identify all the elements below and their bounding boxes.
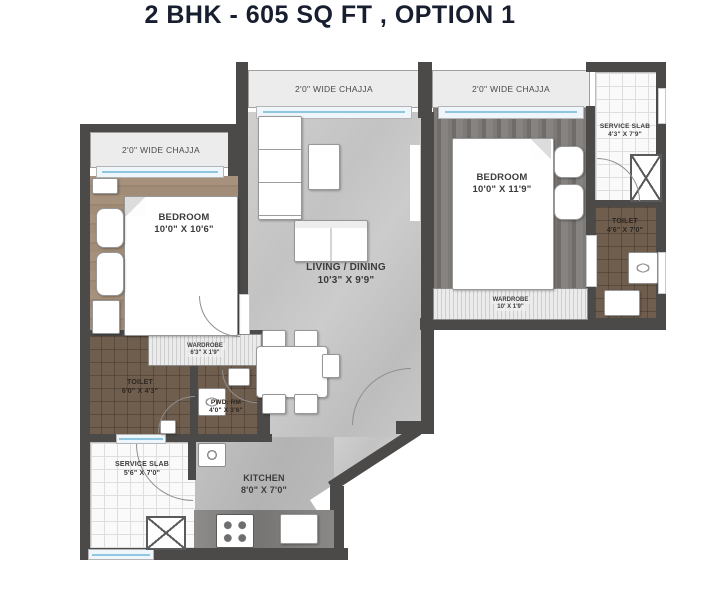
wall: [586, 62, 666, 72]
vanity-sink: [628, 252, 658, 284]
toilet-left-label: TOILET 6'0" X 4'3": [96, 374, 184, 400]
wardrobe-right-dims: 10' X 1'9": [495, 304, 525, 311]
window-service-bottom: [88, 549, 154, 560]
chajja-left: 2'0" WIDE CHAJJA: [90, 132, 232, 168]
wall-outer-left: [80, 168, 90, 560]
window-left-chajja: [96, 166, 224, 178]
nightstand: [92, 178, 118, 194]
kitchen-sink: [280, 514, 318, 544]
wall: [418, 62, 432, 118]
pillow: [554, 146, 584, 178]
window-toilet-left: [116, 434, 166, 444]
shower-tray: [604, 290, 640, 316]
tv-unit: [258, 116, 302, 220]
pillow: [554, 184, 584, 220]
wall: [228, 124, 248, 176]
shaft-cross-icon: [146, 516, 186, 550]
dining-table: [256, 346, 328, 398]
chajja-left-label: 2'0" WIDE CHAJJA: [122, 145, 200, 155]
kitchen-label: KITCHEN 8'0" X 7'0": [212, 470, 316, 500]
washing-machine-icon: [198, 443, 226, 467]
pillow: [96, 208, 124, 248]
window-right-wall-bottom: [658, 252, 666, 294]
sofa: [294, 220, 368, 262]
powder-room-label: PWD. RM 4'0" X 3'6": [196, 394, 256, 420]
chajja-right-label: 2'0" WIDE CHAJJA: [472, 84, 550, 94]
dining-chair: [322, 354, 340, 378]
chajja-right: 2'0" WIDE CHAJJA: [432, 70, 590, 108]
wardrobe-left-dims: 6'3" X 1'9": [188, 350, 221, 357]
bed-right: [452, 138, 554, 290]
bedroom-left-label: BEDROOM 10'0" X 10'6": [134, 206, 234, 242]
wardrobe-right: WARDROBE 10' X 1'9": [433, 288, 588, 320]
floor-plan-canvas: 2 BHK - 605 SQ FT , OPTION 1 2'0" WIDE C…: [0, 0, 706, 599]
wall-living-right: [421, 112, 434, 434]
window-right-wall-top: [658, 88, 666, 124]
living-dining-label: LIVING / DINING 10'3" X 9'9": [290, 258, 402, 290]
center-table: [308, 144, 340, 190]
bench: [92, 300, 120, 334]
door-gap-toilet-right: [586, 235, 597, 287]
bedroom-right-label: BEDROOM 10'0" X 11'9": [452, 164, 552, 204]
wall-toilet-service-bottom: [80, 434, 272, 442]
service-slab-right-label: SERVICE SLAB 4'3" X 7'9": [596, 118, 654, 144]
stove-icon: [216, 514, 254, 548]
wall: [80, 124, 238, 132]
window-right-chajja: [438, 106, 584, 119]
pillow: [96, 252, 124, 296]
dining-chair: [262, 394, 286, 414]
wall: [236, 62, 248, 132]
chajja-middle-label: 2'0" WIDE CHAJJA: [295, 84, 373, 94]
page-title: 2 BHK - 605 SQ FT , OPTION 1: [0, 1, 660, 30]
service-slab-bottom-label: SERVICE SLAB 5'6" X 7'0": [96, 456, 188, 482]
wardrobe-left: WARDROBE 6'3" X 1'9": [148, 334, 262, 366]
wardrobe-right-name: WARDROBE: [491, 297, 531, 304]
wardrobe-left-name: WARDROBE: [185, 343, 225, 350]
dining-chair: [294, 394, 318, 414]
chajja-middle: 2'0" WIDE CHAJJA: [248, 70, 420, 108]
door-leaf-bedroom-right: [409, 144, 421, 222]
toilet-right-label: TOILET 4'6" X 7'0": [598, 214, 652, 238]
bed-right-fold: [531, 139, 551, 159]
